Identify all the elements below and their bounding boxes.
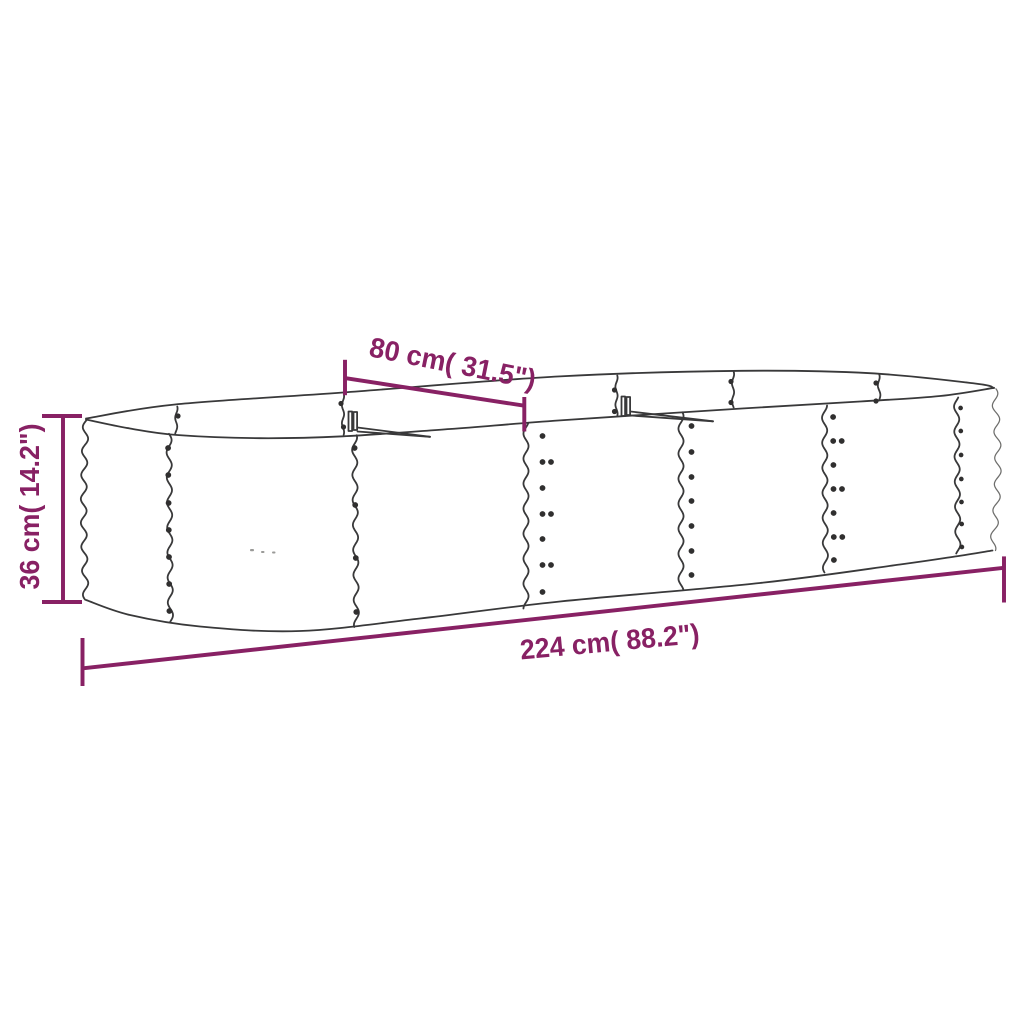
svg-text:224 cm( 88.2"): 224 cm( 88.2") <box>519 618 701 665</box>
svg-text:36 cm( 14.2"): 36 cm( 14.2") <box>14 424 45 590</box>
